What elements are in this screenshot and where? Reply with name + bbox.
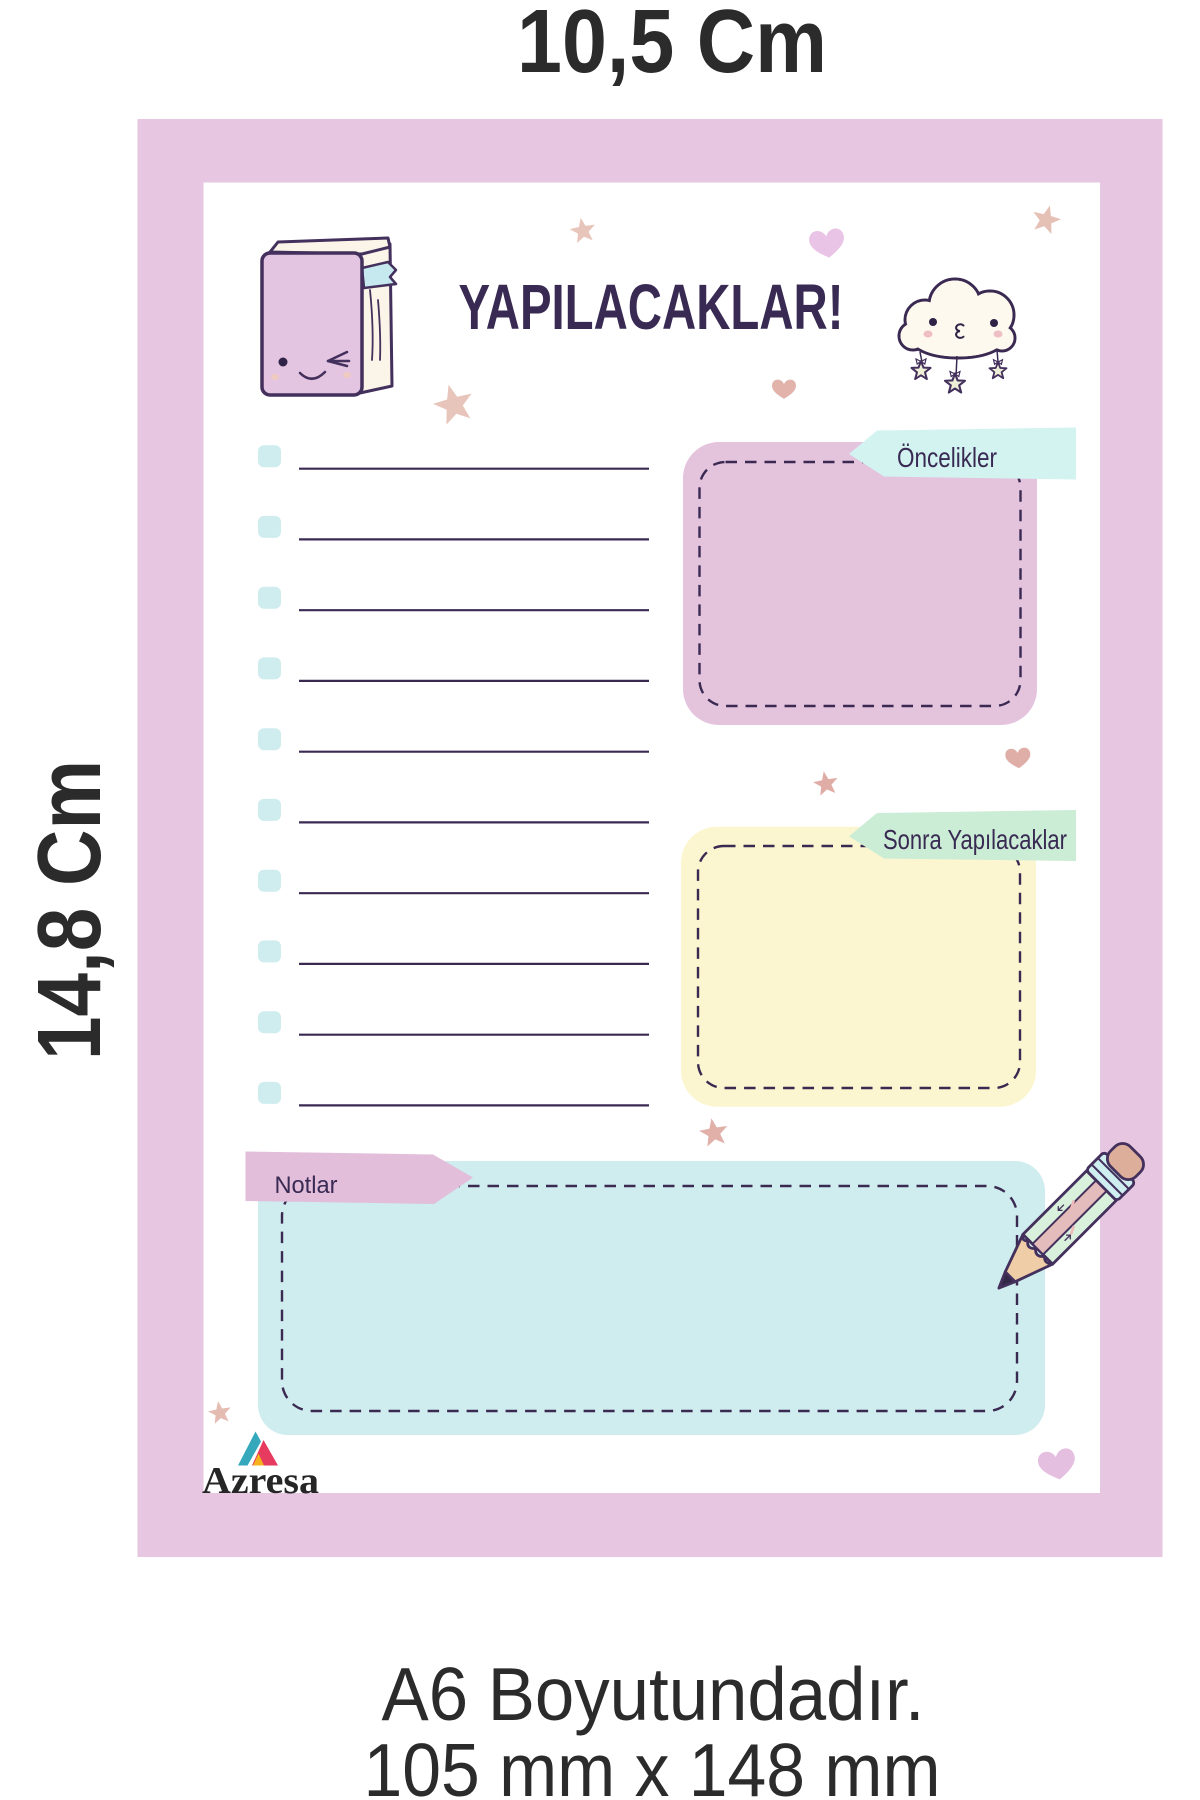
svg-text:A6 Boyutundadır.: A6 Boyutundadır. [382,1652,925,1736]
svg-text:Azresa: Azresa [202,1460,319,1502]
svg-text:Sonra Yapılacaklar: Sonra Yapılacaklar [883,824,1067,855]
svg-text:14,8 Cm: 14,8 Cm [20,760,120,1060]
svg-text:YAPILACAKLAR!: YAPILACAKLAR! [459,271,844,343]
svg-text:10,5 Cm: 10,5 Cm [517,0,827,92]
svg-text:Notlar: Notlar [275,1172,338,1199]
svg-text:105 mm x 148 mm: 105 mm x 148 mm [364,1728,941,1800]
svg-text:Öncelikler: Öncelikler [897,442,997,473]
